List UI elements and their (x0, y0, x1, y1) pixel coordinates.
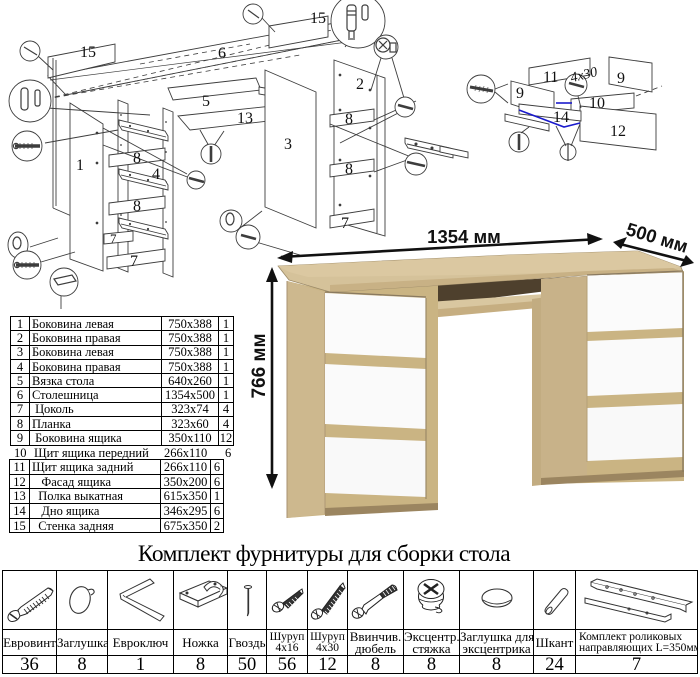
svg-text:7: 7 (110, 231, 117, 246)
svg-text:9: 9 (516, 85, 524, 102)
svg-text:8: 8 (133, 150, 141, 167)
svg-text:2: 2 (356, 76, 364, 93)
svg-text:3: 3 (284, 136, 292, 153)
svg-text:12: 12 (610, 123, 626, 140)
svg-text:13: 13 (237, 110, 253, 127)
svg-text:8: 8 (133, 198, 141, 215)
svg-text:4: 4 (152, 166, 160, 183)
svg-text:9: 9 (617, 70, 625, 87)
svg-text:766 мм: 766 мм (249, 333, 270, 398)
svg-text:8: 8 (345, 111, 353, 128)
svg-text:1354 мм: 1354 мм (427, 226, 501, 247)
svg-text:15: 15 (80, 44, 96, 61)
svg-text:7: 7 (130, 253, 138, 270)
svg-text:1: 1 (76, 157, 84, 174)
svg-text:8: 8 (345, 161, 353, 178)
svg-text:6: 6 (218, 45, 226, 62)
svg-text:15: 15 (310, 10, 326, 27)
svg-text:11: 11 (543, 69, 558, 86)
svg-text:14: 14 (553, 109, 569, 126)
svg-text:10: 10 (589, 95, 605, 112)
svg-text:5: 5 (202, 93, 210, 110)
